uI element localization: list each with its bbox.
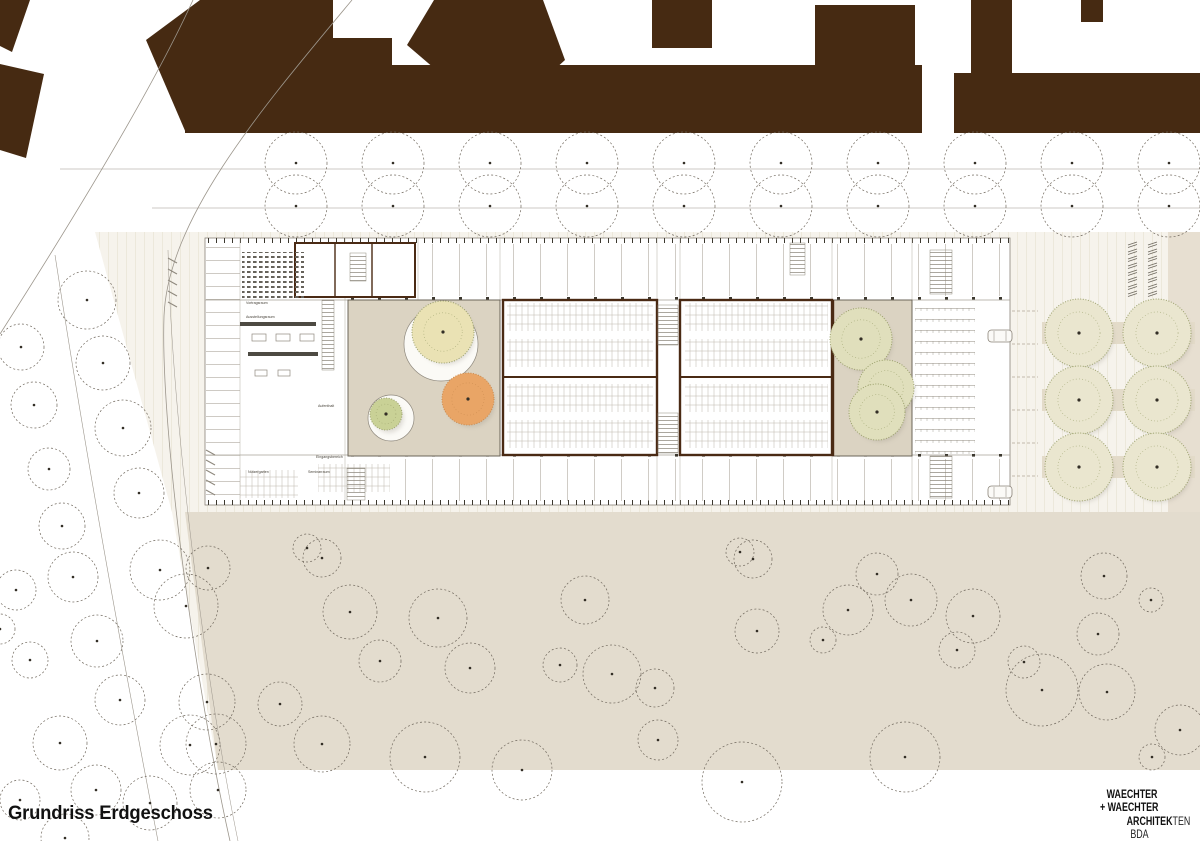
- room-label: Eingangsbereich: [316, 455, 343, 459]
- field-trees: [186, 534, 1200, 822]
- parking-combs: [915, 302, 975, 454]
- architect-logo: WAECHTER+ WAECHTERARCHITEKTENBDA: [1100, 788, 1190, 841]
- parking-stall-lines: [1012, 311, 1038, 476]
- page-title: Grundriss Erdgeschoss: [8, 803, 213, 825]
- parking-grove: [1042, 299, 1195, 502]
- room-label: Nutzergarten: [248, 470, 269, 474]
- site-plan-canvas: VortragsraumAusstellungsraumAufenthaltEi…: [0, 0, 1200, 841]
- room-label: Seminarraum: [308, 470, 330, 474]
- logo-line: + WAECHTER: [1100, 801, 1190, 814]
- logo-line: ARCHITEKTEN: [1127, 815, 1191, 828]
- logo-line: BDA: [1130, 828, 1190, 841]
- lecture-seating: [242, 252, 304, 298]
- room-label: Ausstellungsraum: [246, 315, 275, 319]
- plan-drawing: VortragsraumAusstellungsraumAufenthaltEi…: [0, 0, 1200, 841]
- bike-racks: [1128, 242, 1157, 297]
- road-edge: [55, 255, 158, 841]
- road-edge: [0, 0, 193, 334]
- room-label: Aufenthalt: [318, 404, 334, 408]
- logo-line: WAECHTER: [1107, 788, 1191, 801]
- room-label: Vortragsraum: [246, 301, 268, 305]
- avenue-trees: [265, 132, 1200, 237]
